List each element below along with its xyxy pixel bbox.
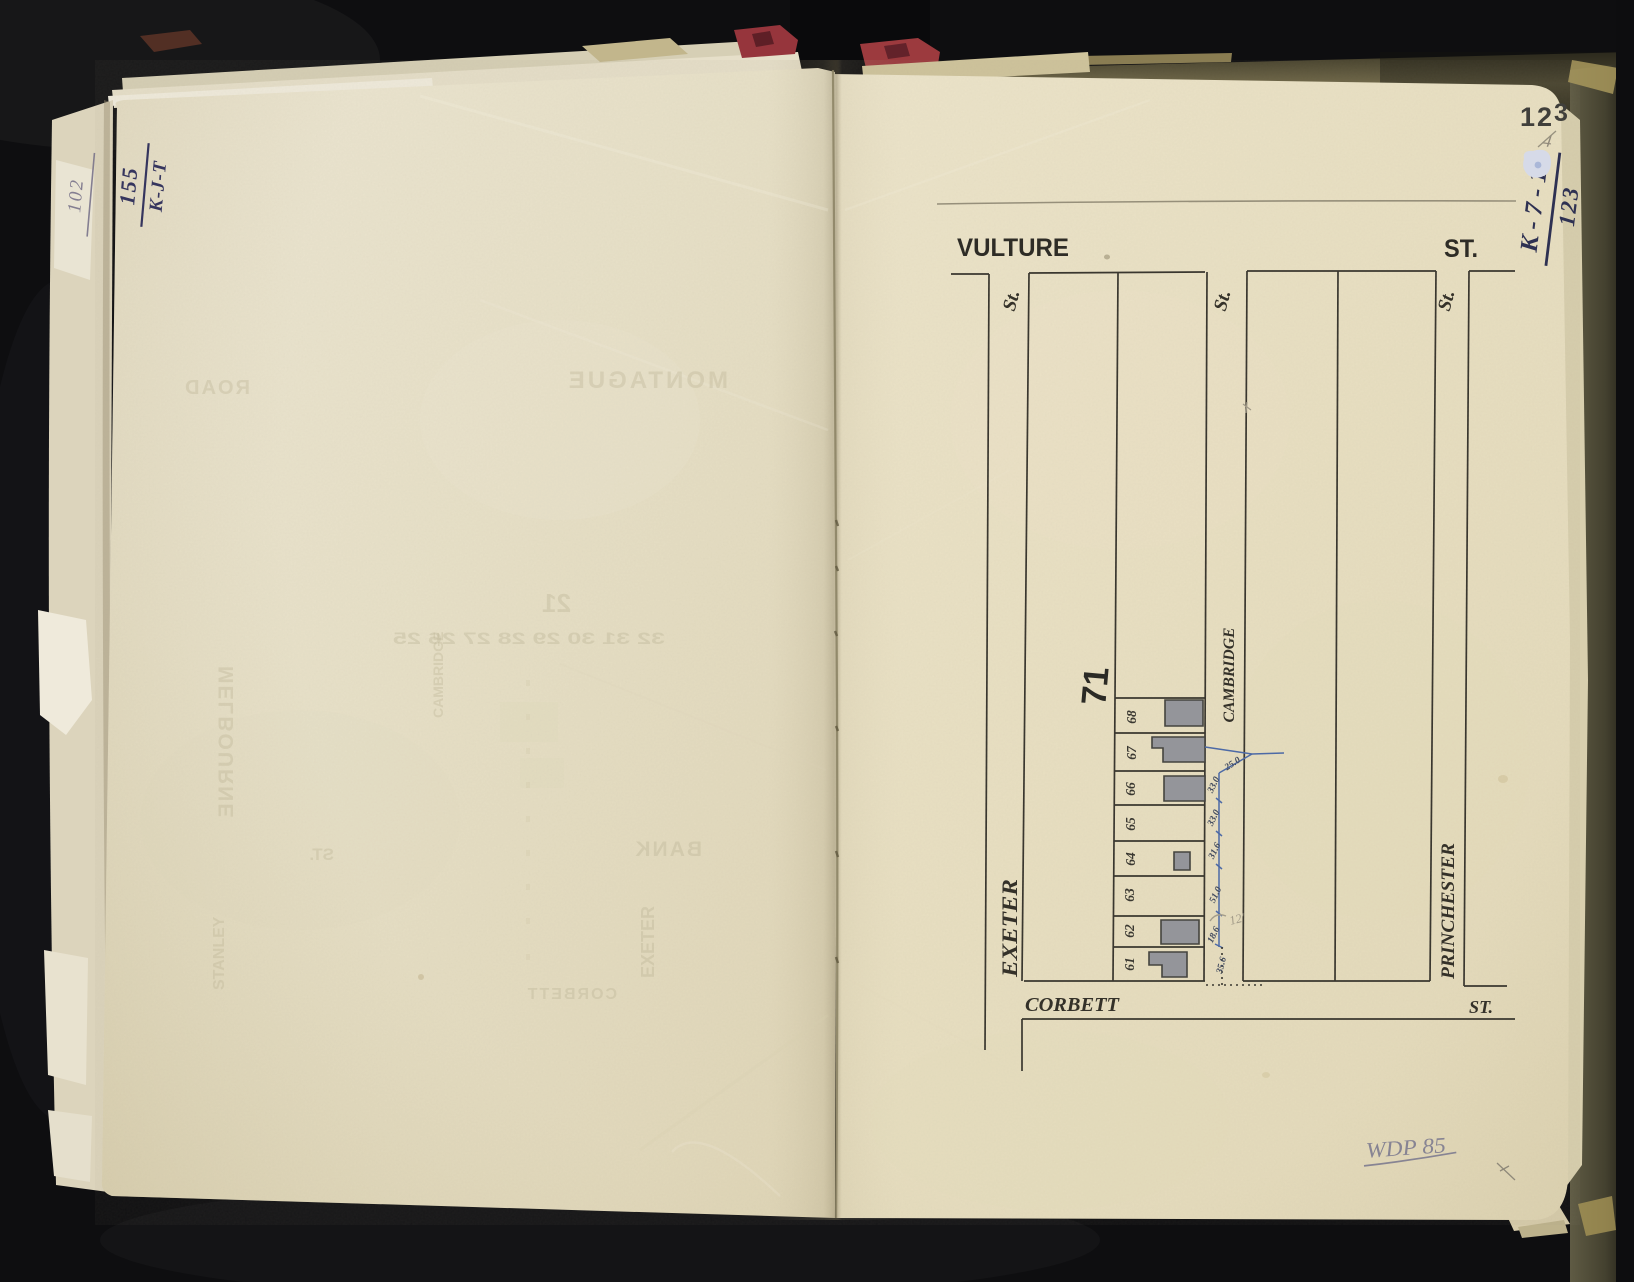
svg-text:CAMBRIDGE: CAMBRIDGE: [1221, 628, 1238, 723]
svg-text:CORBETT: CORBETT: [526, 986, 617, 1003]
svg-text:MELBOURNE: MELBOURNE: [215, 666, 238, 819]
svg-text:BANK: BANK: [633, 838, 702, 861]
svg-text:ST.: ST.: [309, 845, 334, 864]
svg-text:61: 61: [1122, 957, 1137, 971]
svg-text:ST.: ST.: [1469, 997, 1493, 1017]
svg-text:65: 65: [1123, 817, 1138, 831]
svg-text:CAMBRIDGE: CAMBRIDGE: [430, 632, 446, 718]
svg-text:71: 71: [1074, 665, 1116, 706]
svg-text:CORBETT: CORBETT: [1025, 994, 1120, 1016]
svg-text:63: 63: [1122, 888, 1137, 902]
svg-text:155: 155: [114, 165, 142, 206]
svg-text:21: 21: [542, 588, 571, 618]
svg-text:VULTURE: VULTURE: [957, 234, 1069, 262]
svg-text:102: 102: [64, 177, 88, 213]
svg-text:PRINCHESTER: PRINCHESTER: [1438, 843, 1459, 980]
svg-text:66: 66: [1123, 782, 1138, 796]
svg-text:ST.: ST.: [1444, 235, 1478, 263]
svg-text:67: 67: [1124, 745, 1139, 760]
svg-text:EXETER: EXETER: [638, 906, 658, 978]
svg-text:MONTAGUE: MONTAGUE: [566, 367, 728, 394]
svg-text:123: 123: [1554, 185, 1584, 228]
svg-text:68: 68: [1124, 710, 1139, 724]
svg-text:62: 62: [1122, 924, 1137, 938]
svg-text:STANLEY: STANLEY: [211, 916, 228, 990]
svg-text:EXETER: EXETER: [997, 879, 1022, 978]
svg-text:64: 64: [1123, 852, 1138, 866]
svg-text:ROAD: ROAD: [183, 377, 250, 399]
